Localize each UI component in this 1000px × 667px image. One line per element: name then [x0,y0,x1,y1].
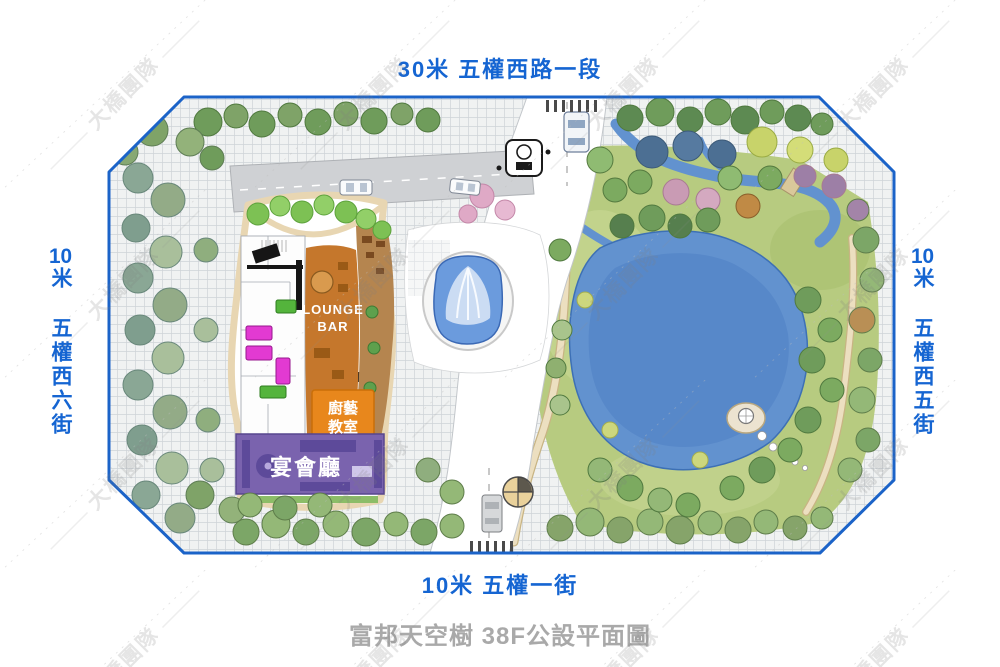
street-label-bottom: 10米 五權一街 [0,568,1000,600]
street-label-right-number: 10 [911,246,934,267]
street-label-right-name: 米 五權西五街 [911,267,934,437]
street-label-right: 10米 五權西五街 [912,246,933,437]
street-label-top: 30米 五權西路一段 [0,52,1000,84]
lounge-bar-label-line2: BAR [317,319,348,334]
fountain-pool [405,222,549,373]
kitchen-label: 廚藝 [328,399,358,417]
street-label-left-number: 10 [49,246,72,267]
kitchen-label-line2: 教室 [327,418,358,436]
site-plan-page: LOUNGE BAR 廚藝 教室 宴會廳 [0,0,1000,667]
street-label-left-name: 米 五權西六街 [49,267,72,437]
building-parcel: LOUNGE BAR 廚藝 教室 宴會廳 [231,195,394,507]
street-label-left: 10米 五權西六街 [50,246,71,437]
plan-title: 富邦天空樹 38F公設平面圖 [0,616,1000,651]
banquet-label: 宴會廳 [270,455,342,480]
site-plan-drawing: LOUNGE BAR 廚藝 教室 宴會廳 [0,0,1000,667]
lounge-bar-label: LOUNGE [302,302,364,317]
